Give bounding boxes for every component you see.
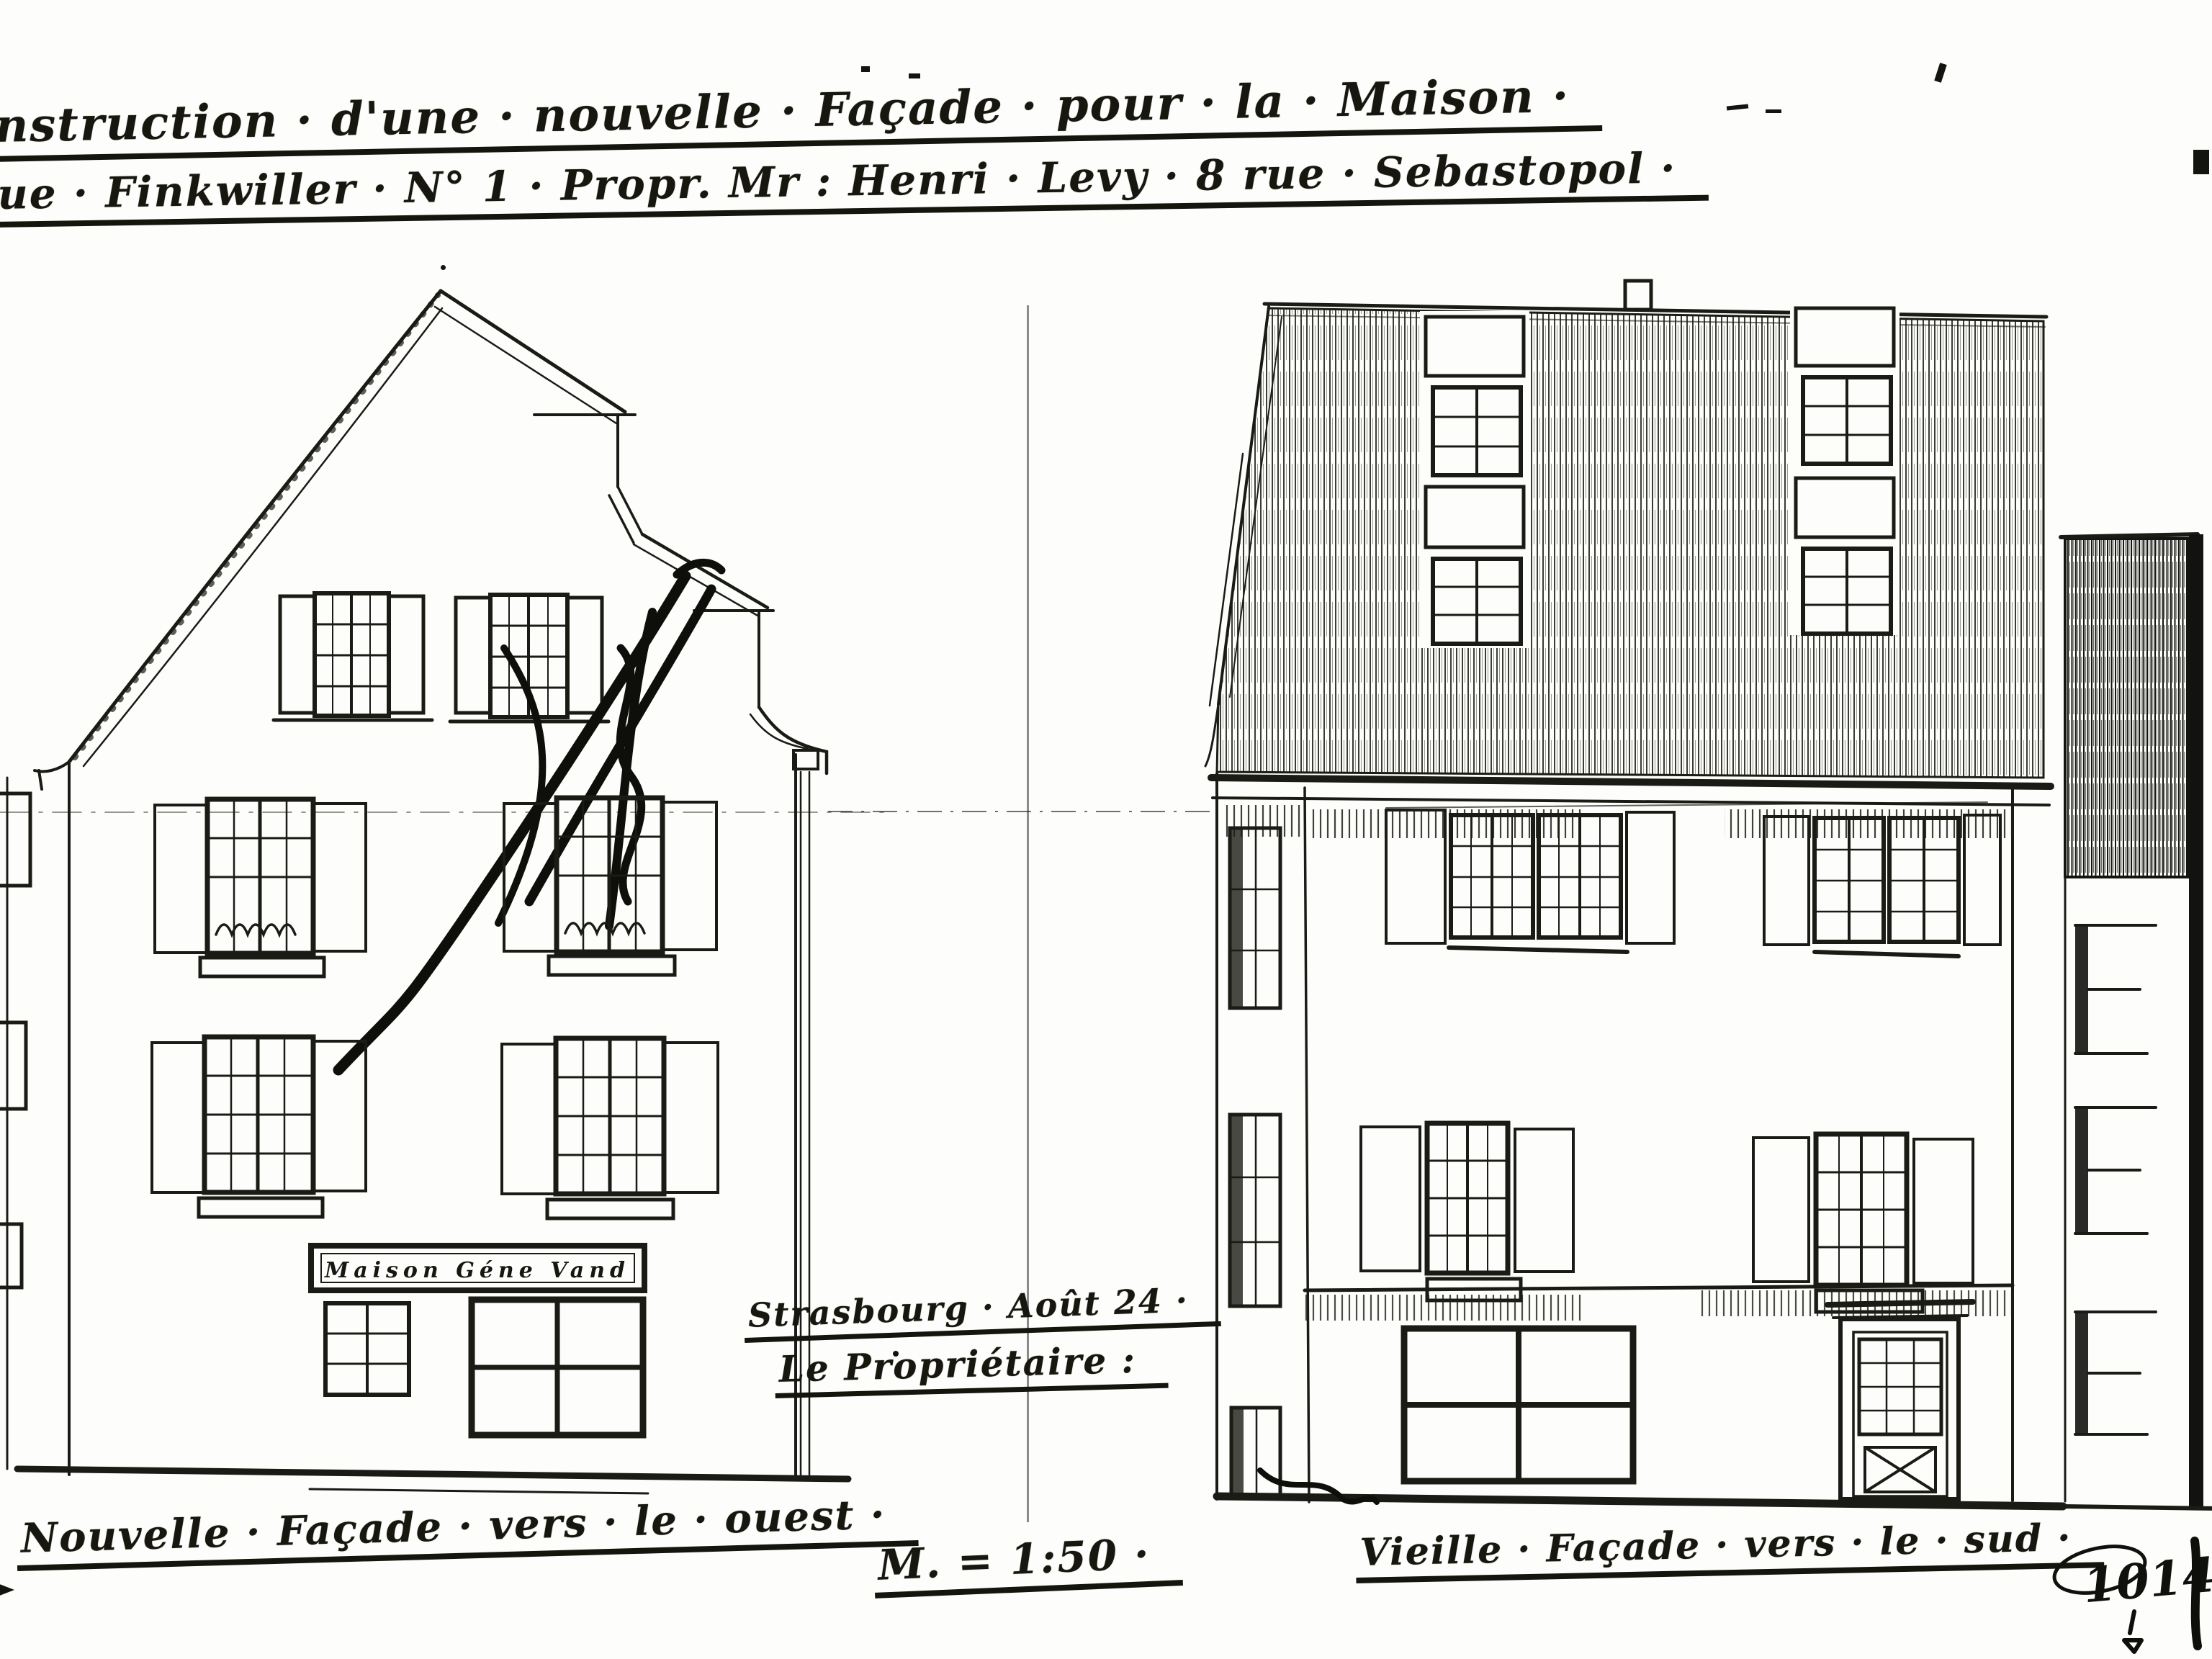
side-wing-windows [1230, 828, 1280, 1496]
attic-window-left [274, 593, 432, 720]
shop-sign-text: Maison Géne Vand [324, 1258, 630, 1283]
scan-speck [441, 265, 446, 270]
window-group-1f-left [1361, 1123, 1573, 1300]
hipped-roof [1205, 281, 2046, 778]
ground-floor-window-small [325, 1303, 409, 1395]
neighbour-window [2075, 1107, 2156, 1233]
facade-walls [1217, 773, 2013, 1502]
gable-roof [35, 291, 827, 789]
window-group-1f-left [152, 1037, 366, 1217]
entrance-door [1827, 1302, 1973, 1499]
ground-line [1217, 1470, 2212, 1509]
scan-speck [909, 73, 920, 78]
left-neighbour-wall [0, 778, 30, 1469]
signatory-note: Le Propriétaire : [774, 1338, 1169, 1398]
scan-speck [861, 66, 870, 72]
eaves-cornice [1211, 778, 2051, 805]
neighbour-window [2075, 1312, 2156, 1434]
scan-speck [893, 1351, 899, 1357]
scan-speck [2193, 150, 2209, 174]
facade-wall [17, 755, 848, 1493]
scale-label: M. = 1:50 · [873, 1528, 1183, 1599]
shop-window [1404, 1328, 1633, 1481]
caption-right-elevation: Vieille · Façade · vers · le · sud · [1355, 1515, 2104, 1583]
signature-mark: 1014 [2049, 1532, 2212, 1659]
chimney [1625, 281, 1651, 310]
shop-window [472, 1300, 643, 1435]
neighbour-window [2075, 925, 2156, 1053]
scan-speck-arrow [0, 1583, 14, 1597]
scan-speck [1727, 104, 1748, 110]
scan-speck [1934, 63, 1947, 83]
right-elevation-drawing [1195, 274, 2212, 1519]
window-group-2f-left [155, 799, 366, 976]
fold-crease [1027, 305, 1029, 1522]
scan-speck [1766, 109, 1781, 113]
roof-dormer-column-right [1790, 302, 1899, 635]
shop-sign: Maison Géne Vand [311, 1246, 644, 1290]
roof-dormer-column-left [1420, 311, 1529, 648]
right-neighbour-building [2061, 534, 2203, 1506]
window-group-1f-right [502, 1038, 718, 1218]
scanned-architectural-drawing: nstruction · d'une · nouvelle · Façade ·… [0, 0, 2212, 1659]
